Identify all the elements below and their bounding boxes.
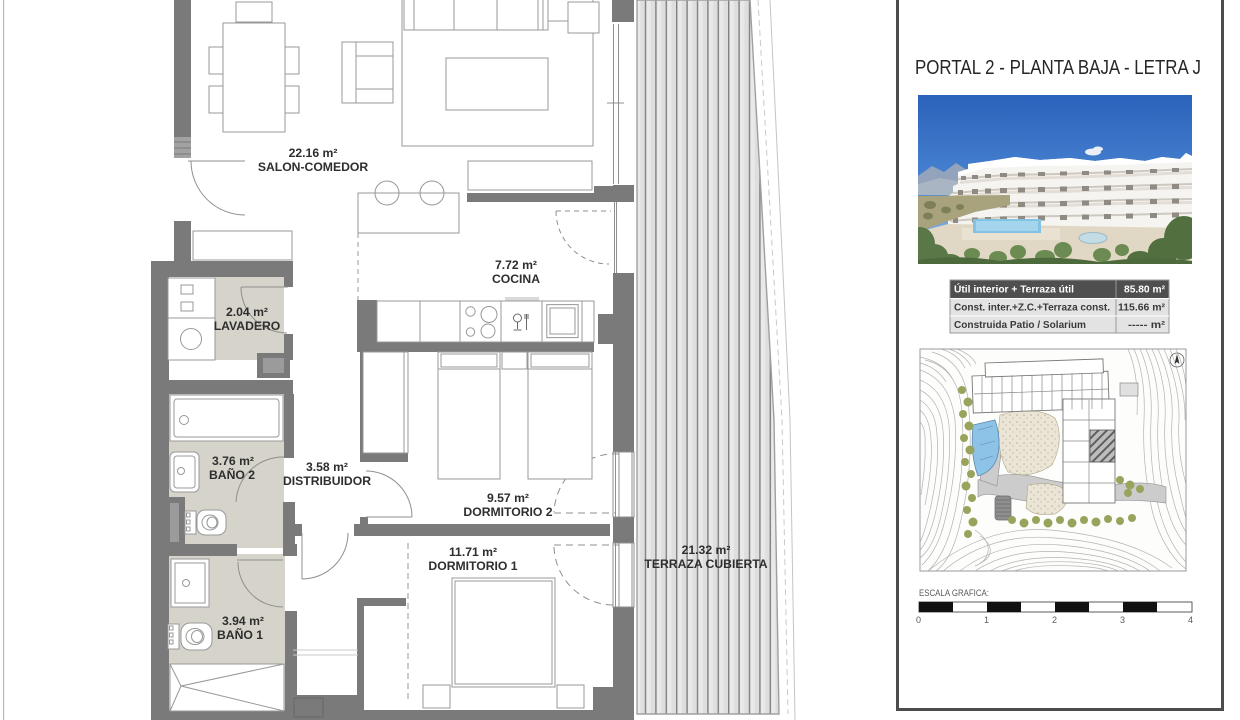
svg-text:SALON-COMEDOR: SALON-COMEDOR: [258, 160, 369, 174]
svg-text:7.72 m²: 7.72 m²: [495, 258, 537, 272]
svg-text:115.66 m²: 115.66 m²: [1118, 302, 1165, 314]
svg-text:LAVADERO: LAVADERO: [214, 319, 281, 333]
svg-text:3.58 m²: 3.58 m²: [306, 460, 348, 474]
svg-text:9.57 m²: 9.57 m²: [487, 491, 529, 505]
svg-text:COCINA: COCINA: [492, 272, 540, 286]
svg-text:----- m²: ----- m²: [1128, 319, 1166, 331]
svg-text:2.04 m²: 2.04 m²: [226, 305, 268, 319]
svg-text:3: 3: [1120, 615, 1125, 625]
svg-text:PORTAL 2 - PLANTA BAJA - LETRA: PORTAL 2 - PLANTA BAJA - LETRA J: [915, 56, 1201, 79]
svg-text:22.16 m²: 22.16 m²: [289, 146, 338, 160]
svg-text:Útil interior + Terraza útil: Útil interior + Terraza útil: [954, 283, 1074, 296]
svg-text:3.94 m²: 3.94 m²: [222, 614, 264, 628]
svg-text:85.80 m²: 85.80 m²: [1124, 284, 1165, 296]
svg-text:ESCALA GRAFICA:: ESCALA GRAFICA:: [919, 588, 989, 598]
svg-text:TERRAZA CUBIERTA: TERRAZA CUBIERTA: [644, 557, 767, 571]
svg-text:2: 2: [1052, 615, 1057, 625]
svg-text:4: 4: [1188, 615, 1193, 625]
svg-text:BAÑO 2: BAÑO 2: [209, 467, 255, 482]
svg-text:Const. inter.+Z.C.+Terraza con: Const. inter.+Z.C.+Terraza const.: [954, 302, 1110, 314]
svg-text:21.32 m²: 21.32 m²: [682, 543, 731, 557]
svg-text:Construida Patio / Solarium: Construida Patio / Solarium: [954, 319, 1086, 331]
svg-text:DORMITORIO 1: DORMITORIO 1: [428, 559, 517, 573]
svg-text:1: 1: [984, 615, 989, 625]
svg-text:0: 0: [916, 615, 921, 625]
svg-text:BAÑO 1: BAÑO 1: [217, 627, 263, 642]
svg-text:11.71 m²: 11.71 m²: [449, 545, 497, 559]
svg-text:DORMITORIO 2: DORMITORIO 2: [463, 505, 552, 519]
svg-text:3.76 m²: 3.76 m²: [212, 454, 254, 468]
svg-text:DISTRIBUIDOR: DISTRIBUIDOR: [283, 474, 371, 488]
